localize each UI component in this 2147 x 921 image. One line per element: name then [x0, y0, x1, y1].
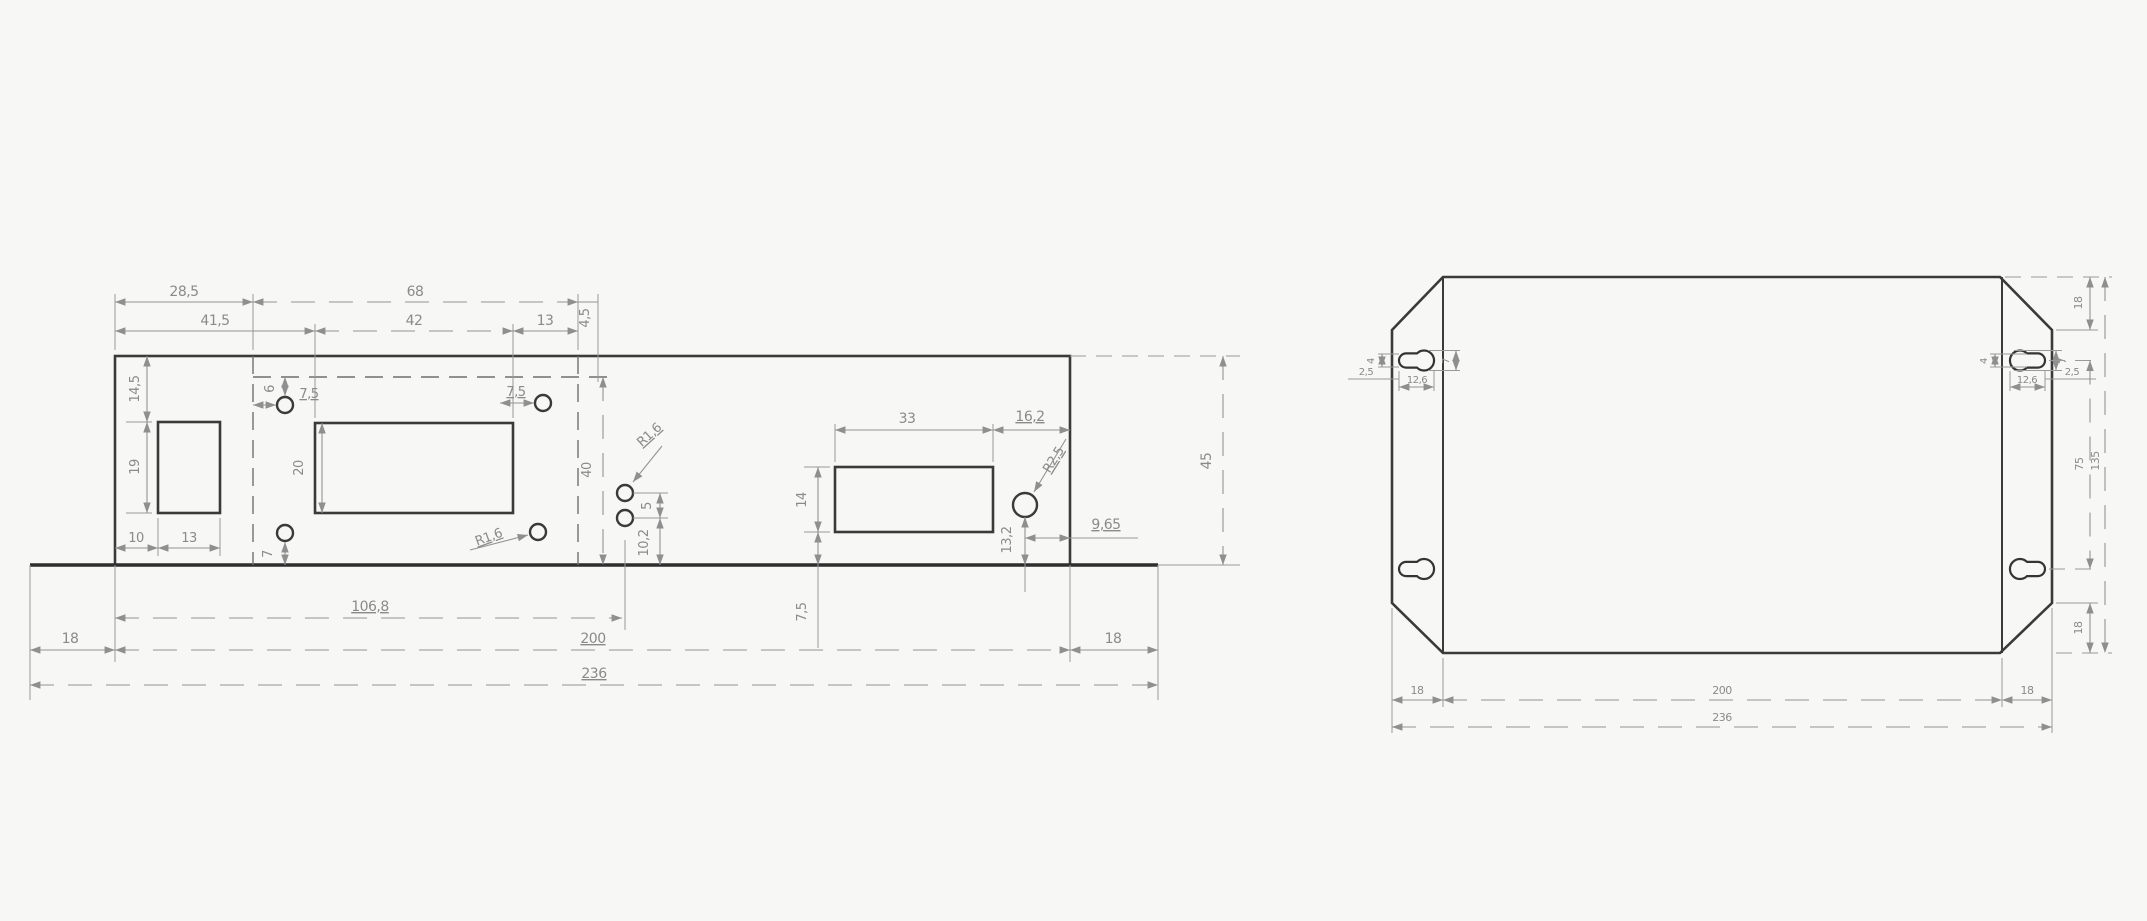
dim-rk-12-6: 12,6	[2017, 375, 2037, 386]
dim-r1-6-pair: R1,6	[634, 420, 665, 450]
dim-45: 45	[1199, 453, 1215, 470]
dim-lk-12-6: 12,6	[1407, 375, 1427, 386]
dim-40: 40	[580, 462, 595, 478]
hole-pair-upper	[617, 485, 633, 501]
dim-tv-135: 135	[2089, 451, 2102, 471]
top-view-bottom-dims: 18 200 18 236	[1392, 608, 2052, 733]
dim-28-5: 28,5	[169, 284, 198, 300]
dim-10-2: 10,2	[637, 530, 652, 557]
hole-bottom-left	[277, 525, 293, 541]
dim-6: 6	[263, 385, 278, 393]
dim-13-top: 13	[537, 313, 554, 329]
dim-18-left: 18	[62, 631, 79, 647]
drawing-svg: 28,5 68 4,5 41,5 42 13 14,5 19 10 13 6 7…	[0, 0, 2147, 921]
dim-68: 68	[407, 284, 424, 300]
dim-lk-7: 7	[1441, 358, 1452, 364]
keyhole-slots	[1399, 351, 2045, 580]
hole-bottom-right	[530, 524, 546, 540]
dim-14: 14	[795, 492, 810, 508]
keyhole-bottom-right	[2010, 559, 2045, 579]
dim-tv-18-left: 18	[1411, 684, 1424, 697]
dim-tv-18-bottom: 18	[2072, 621, 2085, 634]
dim-42: 42	[406, 313, 423, 329]
dim-lk-2-5: 2,5	[1359, 367, 1374, 378]
left-cutout	[158, 422, 220, 513]
hole-pair-lower	[617, 510, 633, 526]
dim-41-5: 41,5	[200, 313, 229, 329]
dim-r1-6-lower: R1,6	[473, 526, 504, 550]
dim-200: 200	[580, 631, 605, 647]
dim-r2-5: R2,5	[1040, 444, 1068, 476]
dim-7-5-left: 7,5	[299, 387, 318, 402]
right-keyhole-dims: 4 2,5 12,6 7	[1979, 351, 2096, 392]
hole-top-right	[535, 395, 551, 411]
dim-20: 20	[292, 460, 307, 476]
top-view-outline	[1392, 277, 2052, 653]
dim-10: 10	[128, 531, 144, 546]
dim-4-5: 4,5	[578, 308, 593, 327]
dim-tv-200: 200	[1712, 684, 1732, 697]
dim-19: 19	[128, 459, 143, 475]
keyhole-bottom-left	[1399, 559, 1434, 579]
top-view-right-dims: 18 75 18 135	[2005, 277, 2112, 653]
engineering-drawing-sheet: 28,5 68 4,5 41,5 42 13 14,5 19 10 13 6 7…	[0, 0, 2147, 921]
dim-14-5: 14,5	[128, 375, 143, 402]
right-cutout	[835, 467, 993, 532]
dim-tv-75: 75	[2073, 457, 2086, 470]
hole-large-right	[1013, 493, 1037, 517]
dim-13-2: 13,2	[1000, 527, 1015, 554]
top-view-drawing: 4 2,5 12,6 7 4 2,5 12,6	[1348, 277, 2112, 733]
dim-106-8: 106,8	[351, 599, 389, 615]
dim-rk-4: 4	[1979, 358, 1990, 364]
dim-236: 236	[581, 666, 607, 682]
front-view-drawing: 28,5 68 4,5 41,5 42 13 14,5 19 10 13 6 7…	[30, 284, 1240, 700]
dim-tv-18-top: 18	[2072, 296, 2085, 309]
hole-top-left	[277, 397, 293, 413]
dim-33: 33	[899, 411, 916, 427]
dim-7: 7	[261, 550, 276, 558]
front-panel-outline	[115, 356, 1070, 565]
keyhole-top-left	[1399, 351, 1434, 371]
dim-7-5-bottom: 7,5	[795, 602, 810, 621]
dim-lk-4: 4	[1366, 358, 1377, 364]
dim-tv-18-right: 18	[2021, 684, 2034, 697]
dim-9-65: 9,65	[1091, 517, 1120, 533]
dim-7-5-right: 7,5	[506, 385, 525, 400]
dim-13-left: 13	[181, 531, 197, 546]
display-cutout	[315, 423, 513, 513]
dim-18-right: 18	[1105, 631, 1122, 647]
dim-16-2: 16,2	[1015, 409, 1044, 425]
dim-5: 5	[640, 502, 655, 510]
dim-tv-236: 236	[1712, 711, 1732, 724]
dim-rk-2-5: 2,5	[2065, 367, 2080, 378]
